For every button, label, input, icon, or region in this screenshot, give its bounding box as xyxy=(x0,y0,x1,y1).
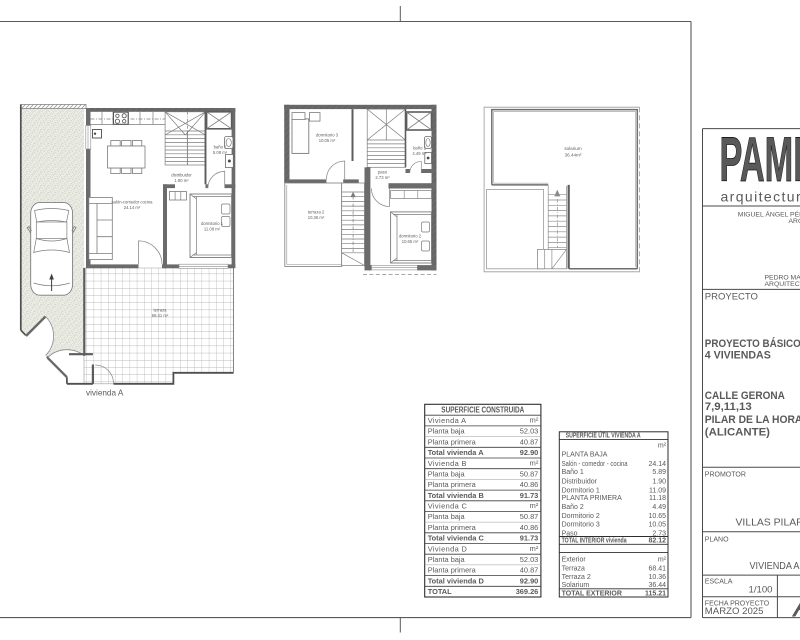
svg-text:10.05 m²: 10.05 m² xyxy=(319,138,336,143)
svg-text:PROMOTOR: PROMOTOR xyxy=(705,472,746,479)
svg-text:Solarium: Solarium xyxy=(562,582,590,589)
svg-text:Dormitorio 2: Dormitorio 2 xyxy=(562,513,600,520)
svg-text:40.87: 40.87 xyxy=(520,437,539,446)
svg-text:Terraza 2: Terraza 2 xyxy=(562,574,591,581)
svg-text:m²: m² xyxy=(658,557,667,564)
svg-text:50.87: 50.87 xyxy=(520,512,539,521)
svg-text:PLANO: PLANO xyxy=(705,536,729,543)
svg-text:Vivienda B: Vivienda B xyxy=(428,459,467,468)
svg-text:paso: paso xyxy=(378,170,388,175)
svg-text:10.36 m²: 10.36 m² xyxy=(308,215,325,220)
svg-text:40.86: 40.86 xyxy=(520,480,539,489)
svg-text:4.49: 4.49 xyxy=(652,504,666,511)
svg-text:PROYECTO: PROYECTO xyxy=(705,291,758,302)
svg-text:PLANTA PRIMERA: PLANTA PRIMERA xyxy=(562,495,622,502)
svg-text:vivienda A: vivienda A xyxy=(86,389,124,398)
svg-text:11.08 m²: 11.08 m² xyxy=(204,227,221,232)
svg-text:10.36: 10.36 xyxy=(648,574,666,581)
svg-text:VILLAS PILAREÑA: VILLAS PILAREÑA xyxy=(736,516,800,529)
svg-text:baño 1: baño 1 xyxy=(214,145,227,150)
svg-text:solarium: solarium xyxy=(564,146,582,151)
svg-text:salón-comedor cocina: salón-comedor cocina xyxy=(112,200,154,205)
svg-text:5.08 m²: 5.08 m² xyxy=(213,150,228,155)
svg-text:Planta primera: Planta primera xyxy=(428,566,477,575)
svg-text:baño 2: baño 2 xyxy=(413,146,426,151)
svg-text:Planta primera: Planta primera xyxy=(428,480,477,489)
svg-text:Total vivienda B: Total vivienda B xyxy=(428,491,484,500)
svg-text:Dormitorio 1: Dormitorio 1 xyxy=(562,487,600,494)
svg-text:ARQ: ARQ xyxy=(789,218,800,225)
svg-text:36.44: 36.44 xyxy=(648,582,666,589)
svg-text:Exterior: Exterior xyxy=(562,557,587,564)
svg-text:Planta baja: Planta baja xyxy=(428,427,466,436)
svg-text:68.41 m²: 68.41 m² xyxy=(152,313,169,318)
svg-text:24.14: 24.14 xyxy=(648,461,666,468)
svg-text:Dormitorio 3: Dormitorio 3 xyxy=(562,522,600,529)
svg-text:ARQUITECTO: ARQUITECTO xyxy=(765,281,800,288)
svg-text:MIGUEL ÁNGEL PÉREZ MA: MIGUEL ÁNGEL PÉREZ MA xyxy=(738,210,800,219)
svg-text:91.73: 91.73 xyxy=(520,491,539,500)
svg-text:11.09: 11.09 xyxy=(649,487,666,494)
svg-text:m²: m² xyxy=(530,501,539,510)
svg-text:SUPERFICIE ÚTIL VIVIENDA A: SUPERFICIE ÚTIL VIVIENDA A xyxy=(566,431,641,440)
svg-text:2.73 m²: 2.73 m² xyxy=(375,175,390,180)
svg-text:92.90: 92.90 xyxy=(520,576,539,585)
svg-text:Baño 1: Baño 1 xyxy=(562,469,584,476)
svg-text:VIVIENDA A: VIVIENDA A xyxy=(750,561,800,572)
svg-text:m²: m² xyxy=(530,416,539,425)
svg-text:Terraza: Terraza xyxy=(562,566,585,573)
svg-text:CALLE GERONA: CALLE GERONA xyxy=(705,390,785,402)
svg-text:PAMP: PAMP xyxy=(720,124,800,195)
svg-text:1/100: 1/100 xyxy=(749,584,773,595)
svg-text:4.49 m²: 4.49 m² xyxy=(412,151,427,156)
svg-text:Vivienda D: Vivienda D xyxy=(428,544,468,553)
svg-text:Planta baja: Planta baja xyxy=(428,555,466,564)
svg-text:4 VIVIENDAS: 4 VIVIENDAS xyxy=(705,349,771,361)
svg-text:dormitorio 3: dormitorio 3 xyxy=(316,133,339,138)
svg-text:Baño 2: Baño 2 xyxy=(562,504,584,511)
svg-text:50.87: 50.87 xyxy=(520,470,539,479)
svg-text:52.03: 52.03 xyxy=(520,427,539,436)
svg-text:ESCALA: ESCALA xyxy=(705,579,733,586)
svg-text:(ALICANTE): (ALICANTE) xyxy=(705,426,770,438)
svg-text:10.65 m²: 10.65 m² xyxy=(402,239,419,244)
svg-text:10.65: 10.65 xyxy=(648,513,666,520)
svg-text:52.03: 52.03 xyxy=(520,555,539,564)
svg-text:TOTAL: TOTAL xyxy=(428,587,452,596)
svg-text:Planta primera: Planta primera xyxy=(428,437,477,446)
svg-text:Planta baja: Planta baja xyxy=(428,470,466,479)
svg-text:m²: m² xyxy=(658,443,667,450)
svg-text:terraza 2: terraza 2 xyxy=(308,210,325,215)
svg-text:92.90: 92.90 xyxy=(520,448,539,457)
svg-text:1.90 m²: 1.90 m² xyxy=(174,178,189,183)
svg-text:PILAR DE LA HORAD: PILAR DE LA HORAD xyxy=(705,414,800,426)
svg-text:10.05: 10.05 xyxy=(648,522,666,529)
svg-text:dormitorio 1: dormitorio 1 xyxy=(201,221,224,226)
svg-text:Planta baja: Planta baja xyxy=(428,512,466,521)
svg-text:Total vivienda A: Total vivienda A xyxy=(428,448,485,457)
svg-text:MARZO 2025: MARZO 2025 xyxy=(705,606,764,617)
svg-text:Total vivienda D: Total vivienda D xyxy=(428,576,485,585)
svg-text:36.44m²: 36.44m² xyxy=(565,153,582,158)
svg-text:m²: m² xyxy=(530,458,539,467)
svg-text:369.26: 369.26 xyxy=(516,587,539,596)
svg-text:7,9,11,13: 7,9,11,13 xyxy=(705,401,752,413)
svg-text:5.89: 5.89 xyxy=(652,469,666,476)
svg-text:PROYECTO BÁSICO: PROYECTO BÁSICO xyxy=(705,337,800,350)
svg-text:11.18: 11.18 xyxy=(649,495,666,502)
svg-text:Vivienda C: Vivienda C xyxy=(428,502,468,511)
svg-text:dormitorio 2: dormitorio 2 xyxy=(399,234,422,239)
svg-text:Salón - comedor - cocina: Salón - comedor - cocina xyxy=(562,461,628,468)
svg-text:40.86: 40.86 xyxy=(520,523,539,532)
svg-text:TOTAL EXTERIOR: TOTAL EXTERIOR xyxy=(562,590,622,597)
svg-text:115.21: 115.21 xyxy=(645,590,666,597)
svg-text:91.73: 91.73 xyxy=(520,534,539,543)
svg-text:1.90: 1.90 xyxy=(652,479,666,486)
svg-text:82.12: 82.12 xyxy=(648,537,666,544)
svg-text:A: A xyxy=(792,587,800,624)
svg-text:40.87: 40.87 xyxy=(520,566,539,575)
svg-text:terraza: terraza xyxy=(153,308,167,313)
svg-text:m²: m² xyxy=(530,544,539,553)
svg-text:SUPERFICIE CONSTRUIDA: SUPERFICIE CONSTRUIDA xyxy=(441,406,524,415)
svg-text:TOTAL INTERIOR vivienda: TOTAL INTERIOR vivienda xyxy=(562,537,627,544)
svg-text:24.14 m²: 24.14 m² xyxy=(124,205,141,210)
svg-text:distribuidor: distribuidor xyxy=(171,173,192,178)
svg-text:arquitectura: arquitectura xyxy=(721,189,800,205)
svg-text:Distribuidor: Distribuidor xyxy=(562,479,598,486)
svg-text:Vivienda A: Vivienda A xyxy=(428,416,467,425)
svg-text:PLANTA BAJA: PLANTA BAJA xyxy=(562,451,608,458)
svg-text:Total vivienda C: Total vivienda C xyxy=(428,534,485,543)
svg-text:Planta primera: Planta primera xyxy=(428,523,477,532)
svg-text:68.41: 68.41 xyxy=(648,566,666,573)
